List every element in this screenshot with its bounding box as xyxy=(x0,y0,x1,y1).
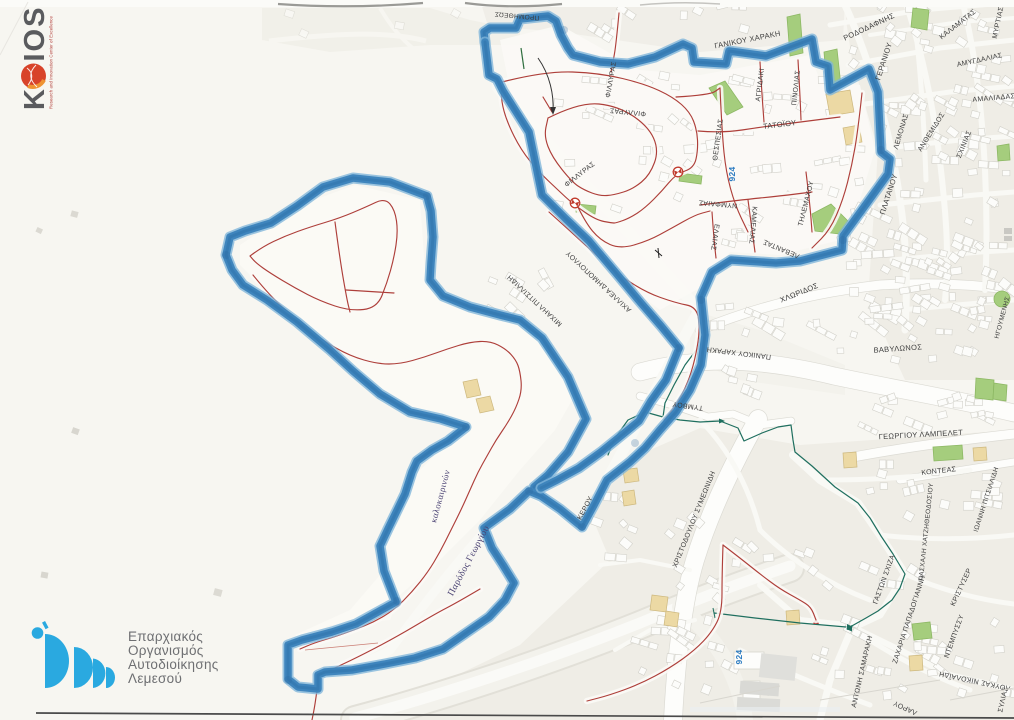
svg-text:IOS: IOS xyxy=(19,6,51,62)
svg-text:Επαρχιακός: Επαρχιακός xyxy=(128,629,203,644)
svg-text:924: 924 xyxy=(727,166,737,181)
svg-text:Research and Innovation Center: Research and Innovation Center of Excell… xyxy=(49,15,54,109)
svg-text:Αυτοδιοίκησης: Αυτοδιοίκησης xyxy=(128,657,219,672)
svg-text:Οργανισμός: Οργανισμός xyxy=(128,643,204,658)
svg-text:924: 924 xyxy=(734,649,744,664)
svg-text:K: K xyxy=(19,87,51,110)
svg-text:Λεμεσού: Λεμεσού xyxy=(128,671,182,686)
